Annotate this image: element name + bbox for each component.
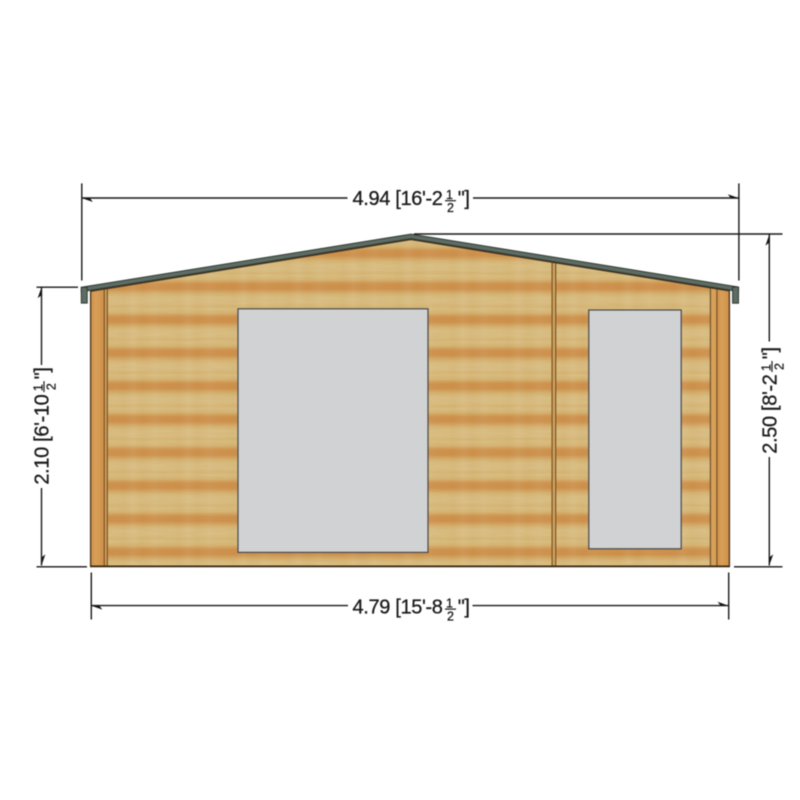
- svg-text:2: 2: [447, 609, 454, 623]
- svg-text:1: 1: [446, 188, 453, 202]
- svg-text:"]: "]: [458, 188, 470, 210]
- svg-text:2: 2: [447, 201, 454, 215]
- svg-text:1: 1: [31, 384, 45, 391]
- svg-text:4.94 [16'-2: 4.94 [16'-2: [353, 188, 443, 210]
- svg-text:"]: "]: [458, 596, 470, 618]
- svg-text:2: 2: [772, 363, 786, 370]
- svg-text:"]: "]: [759, 347, 781, 359]
- svg-text:4.79 [15'-8: 4.79 [15'-8: [353, 596, 443, 618]
- svg-text:2.10 [6'-10: 2.10 [6'-10: [31, 394, 53, 484]
- svg-text:1: 1: [446, 596, 453, 610]
- svg-text:1: 1: [759, 364, 773, 371]
- svg-text:"]: "]: [31, 367, 53, 379]
- svg-text:2.50 [8'-2: 2.50 [8'-2: [759, 374, 781, 453]
- svg-text:2: 2: [44, 383, 58, 390]
